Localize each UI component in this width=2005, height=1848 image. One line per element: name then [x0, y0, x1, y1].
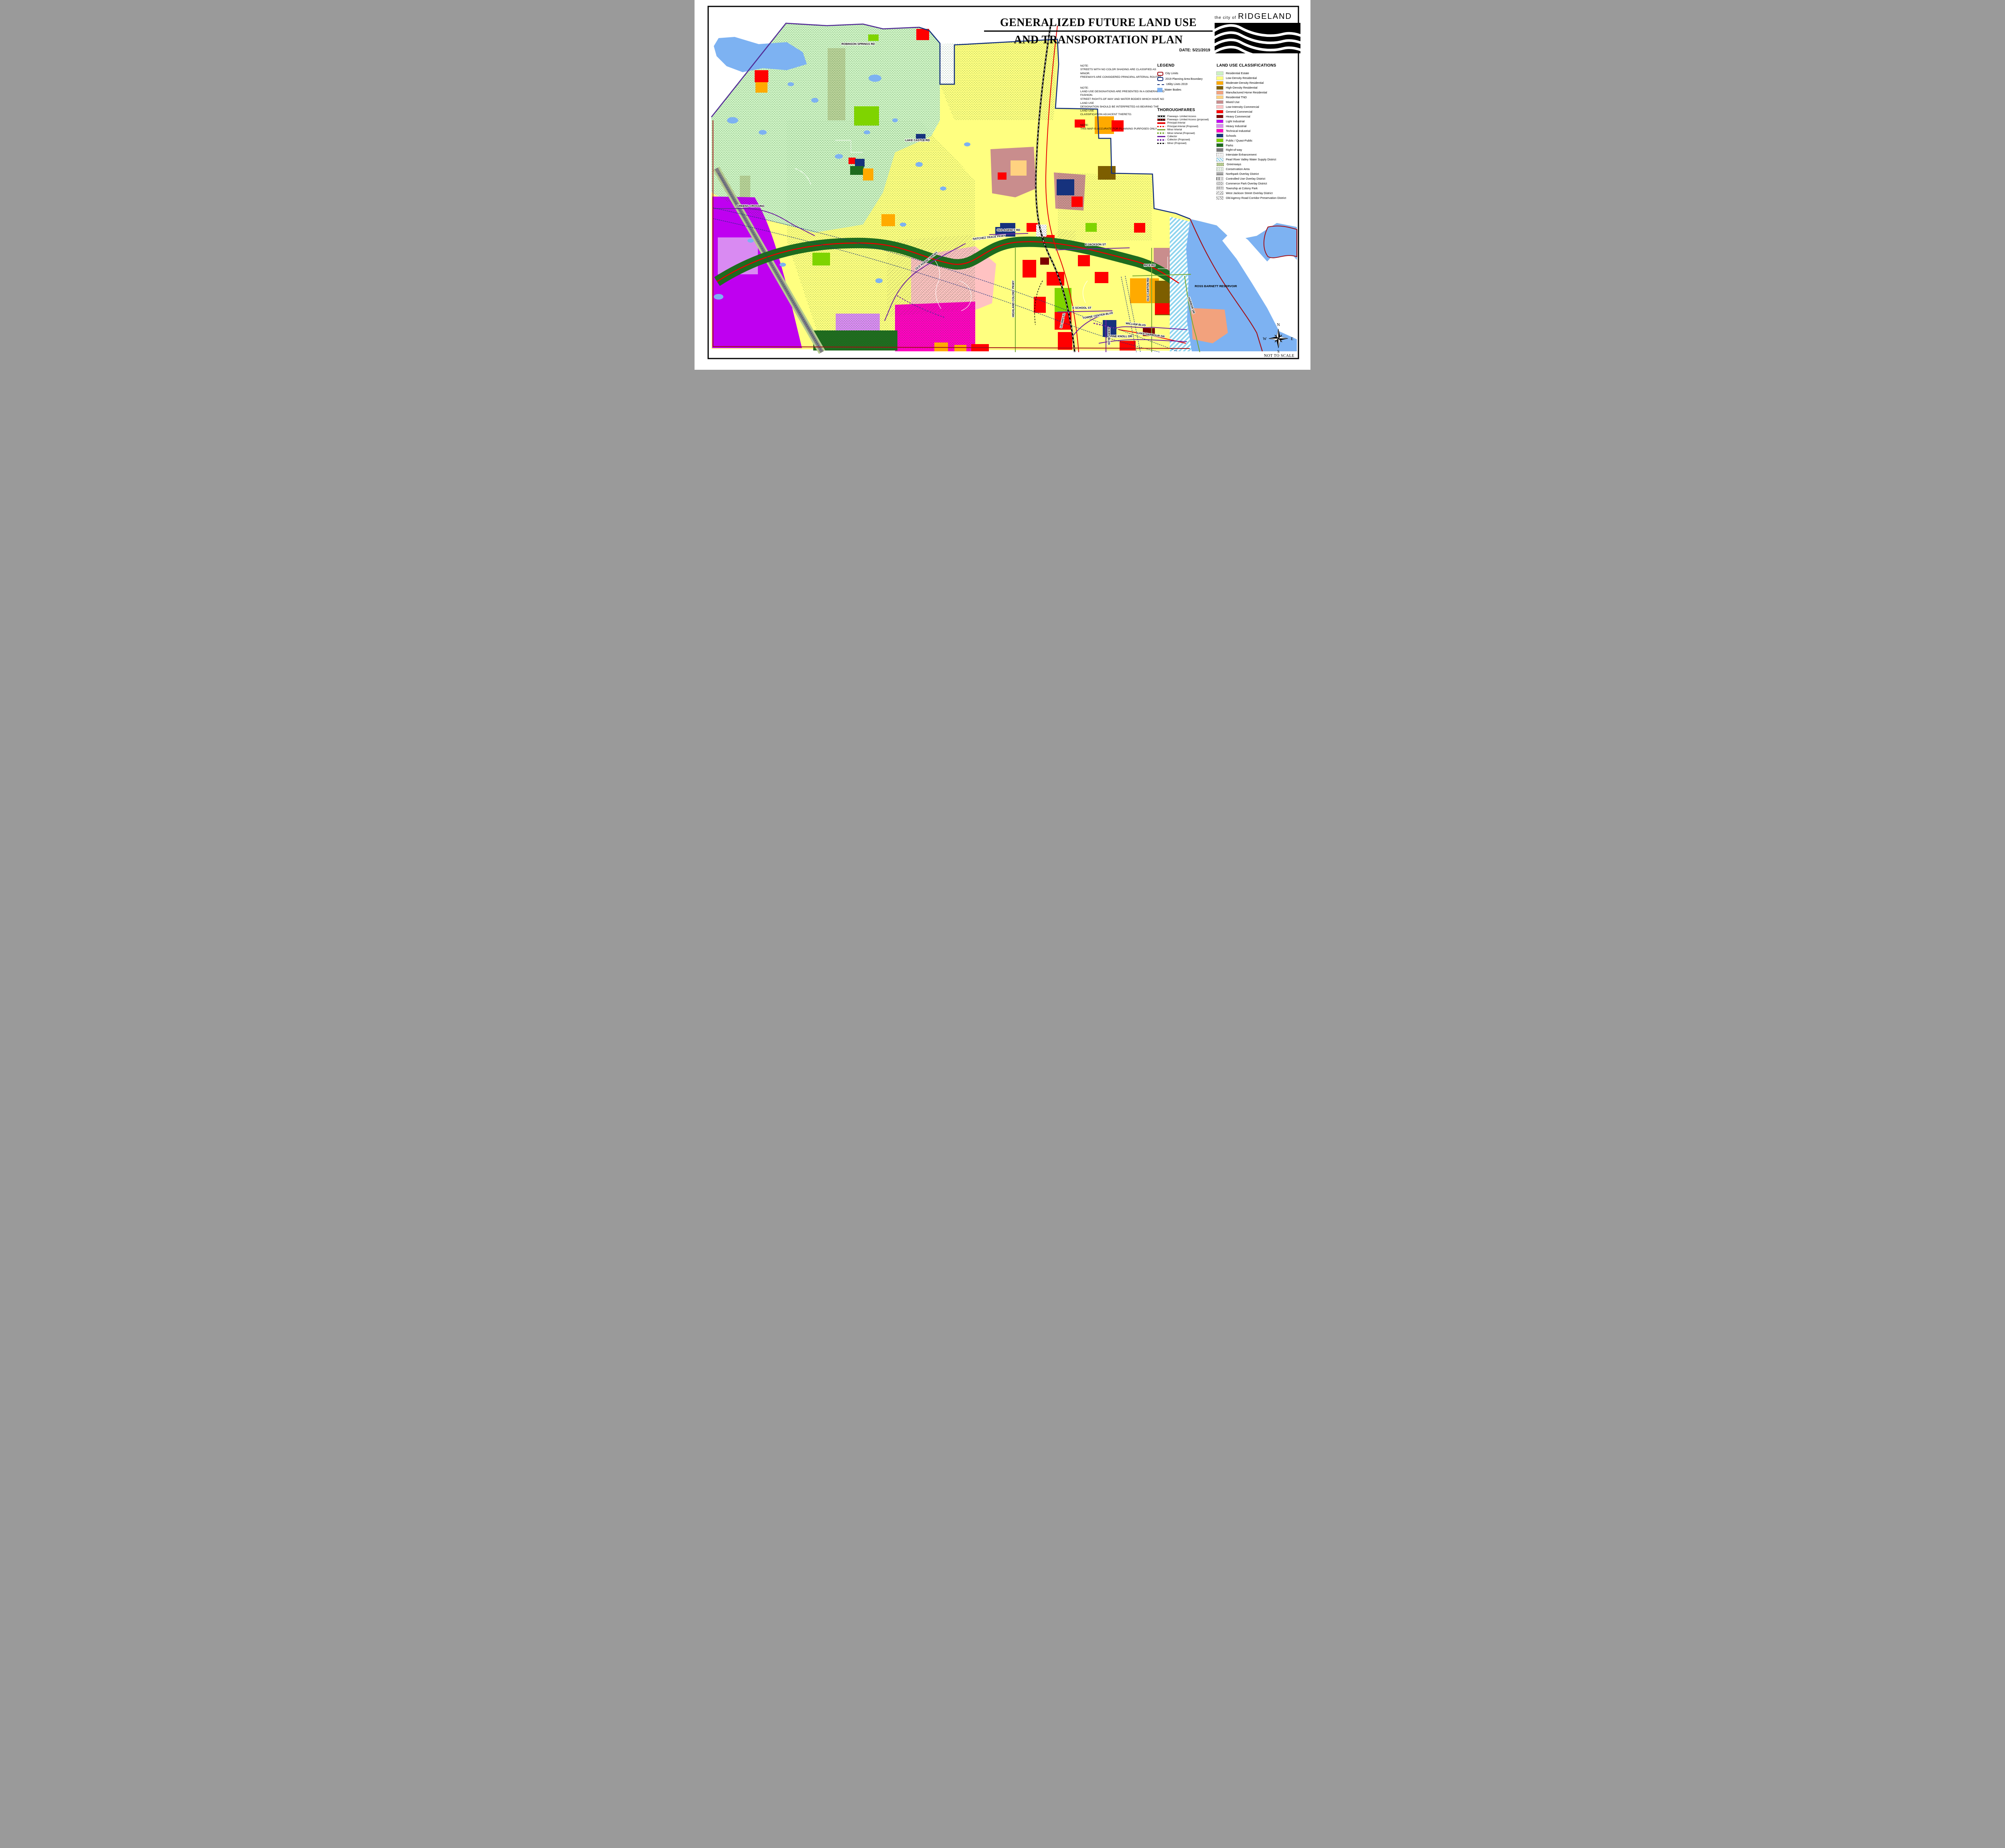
page-title-line1: GENERALIZED FUTURE LAND USE [984, 16, 1213, 29]
compass-w: W [1263, 337, 1267, 341]
land-use-item: Low-Density Residential [1217, 76, 1305, 81]
legend-item-label: Water Bodies [1165, 89, 1181, 91]
thoroughfare-item: Minor Arterial [1157, 128, 1217, 132]
map-label: RICE RD [1144, 264, 1156, 267]
land-use-item: Residential TND [1217, 95, 1305, 100]
land-use-swatch [1217, 168, 1223, 171]
land-use-item: Commerce Park Overlay District [1217, 181, 1305, 186]
land-use-item: Moderate-Density Residential [1217, 81, 1305, 85]
map-label: OLD AGENCY RD [997, 229, 1020, 232]
title-block: GENERALIZED FUTURE LAND USE AND TRANSPOR… [984, 16, 1213, 53]
land-use-swatch [1217, 124, 1223, 128]
land-use-label: General Commercial [1226, 110, 1252, 113]
land-use-label: Schools [1226, 134, 1236, 138]
thoroughfare-label: Minor Arterial [1167, 128, 1182, 131]
city-logo-text: the city of RIDGELAND [1215, 12, 1303, 21]
land-use-swatch [1217, 182, 1223, 185]
land-use-item: Residential Estate [1217, 71, 1305, 76]
city-logo: the city of RIDGELAND [1215, 12, 1303, 55]
land-use-label: Interstate Enhancement [1226, 153, 1256, 156]
legend-item: City Limits [1157, 71, 1209, 77]
land-use-label: High-Density Residential [1226, 86, 1258, 89]
thoroughfares-legend: THOROUGHFARES Freeways- Limited Access F… [1157, 108, 1217, 145]
note-heading: NOTE: [1080, 124, 1167, 127]
thoroughfare-line-symbol [1157, 122, 1165, 124]
note-text: THIS MAP IS ACCURATE FOR PLANNING PURPOS… [1080, 127, 1167, 131]
land-use-swatch [1217, 115, 1223, 118]
land-use-swatch [1217, 101, 1223, 104]
thoroughfare-label: Minor Arterial (Proposed) [1167, 132, 1195, 135]
land-use-swatch [1217, 77, 1223, 80]
thoroughfare-line-symbol [1157, 129, 1165, 130]
legend-item: 2019 Planning Area Boundary [1157, 77, 1209, 82]
land-use-item: General Commercial [1217, 109, 1305, 114]
thoroughfare-line-symbol [1157, 119, 1165, 120]
logo-city-name: RIDGELAND [1238, 12, 1292, 21]
thoroughfare-label: Principal Arterial [1167, 122, 1185, 124]
land-use-swatch [1217, 91, 1223, 94]
thoroughfare-line-symbol [1157, 143, 1165, 144]
land-use-item: Conservation Area [1217, 167, 1305, 172]
note-text: STREETS WITH NO COLOR SHADING ARE CLASSI… [1080, 68, 1167, 79]
map-label: HIGHLAND COLONY PKWY [1012, 280, 1015, 317]
thoroughfare-item: Collector [1157, 135, 1217, 138]
land-use-item: West Jackson Street Overlay District [1217, 190, 1305, 195]
land-use-label: Public / Quasi-Public [1226, 139, 1252, 142]
land-use-label: Pearl River Valley Water Supply District [1226, 158, 1276, 161]
land-use-swatch [1217, 96, 1223, 99]
land-use-legend: LAND USE CLASSIFICATIONS Residential Est… [1217, 63, 1305, 200]
legend: LEGEND City Limits 2019 Planning Area Bo… [1157, 63, 1209, 93]
land-use-swatch [1217, 144, 1223, 147]
land-use-label: Heavy Industrial [1226, 124, 1247, 128]
map-date: DATE: 5/21/2019 [984, 48, 1213, 53]
note: NOTE: LAND USE DESIGNATIONS ARE PRESENTE… [1080, 86, 1167, 117]
land-use-swatch [1217, 139, 1223, 142]
land-use-item: Northpark Overlay District [1217, 172, 1305, 176]
thoroughfare-label: Freeways- Limited Access [1167, 115, 1196, 118]
conservation-overlay [787, 120, 975, 349]
land-use-label: Old Agency Road Corridor Preservation Di… [1226, 196, 1286, 200]
map-label: E SCHOOL ST [1072, 307, 1092, 310]
land-use-item: High-Density Residential [1217, 85, 1305, 90]
land-use-item: Right-of-way [1217, 148, 1305, 152]
land-use-swatch [1217, 192, 1223, 195]
land-use-label: Low-Density Residential [1226, 76, 1257, 80]
map-label: OLD CANTON RD [1147, 278, 1150, 302]
land-use-label: Light Industrial [1226, 120, 1245, 123]
land-use-label: Controlled Use Overlay District [1226, 177, 1265, 180]
map-label: PINE KNOLL DR [1110, 335, 1132, 338]
legend-item-label: 2019 Planning Area Boundary [1165, 78, 1203, 81]
thoroughfare-line-symbol [1157, 132, 1165, 134]
land-use-swatch [1217, 187, 1223, 190]
land-use-label: Technical Industrial [1226, 129, 1250, 133]
land-use-swatch [1217, 129, 1223, 132]
note-heading: NOTE: [1080, 64, 1167, 68]
thoroughfare-label: Minor (Proposed) [1167, 142, 1187, 145]
land-use-item: Parks [1217, 143, 1305, 148]
thoroughfare-line-symbol [1157, 126, 1165, 127]
land-use-item: Light Industrial [1217, 119, 1305, 124]
thoroughfare-label: Collector [1167, 135, 1177, 138]
land-use-item: Old Agency Road Corridor Preservation Di… [1217, 195, 1305, 200]
land-use-item: Controlled Use Overlay District [1217, 176, 1305, 181]
land-use-label: Residential Estate [1226, 71, 1249, 75]
thoroughfare-item: Freeways- Limited Access (proposed) [1157, 118, 1217, 121]
land-use-heading: LAND USE CLASSIFICATIONS [1217, 63, 1305, 68]
note: NOTE: STREETS WITH NO COLOR SHADING ARE … [1080, 64, 1167, 79]
thoroughfare-item: Minor Arterial (Proposed) [1157, 132, 1217, 135]
land-use-swatch [1217, 86, 1223, 89]
logo-prefix: the city of [1215, 16, 1236, 20]
map-label: E JACKSON ST [1085, 243, 1106, 246]
thoroughfare-line-symbol [1157, 139, 1165, 140]
land-use-swatch [1217, 197, 1223, 200]
land-use-item: Manufactured Home Residential [1217, 90, 1305, 95]
land-use-swatch [1217, 105, 1223, 109]
compass-e: E [1291, 337, 1293, 341]
thoroughfare-label: Principal Arterial (Proposed) [1167, 125, 1198, 128]
land-use-swatch [1217, 172, 1223, 176]
thoroughfare-item: Principal Arterial [1157, 122, 1217, 125]
land-use-swatch [1217, 81, 1223, 85]
page-title-line2: AND TRANSPORTATION PLAN [984, 33, 1213, 47]
land-use-label: Greenways [1227, 162, 1241, 166]
map-label: GREENS CROSSING [737, 205, 765, 208]
land-use-item: Public / Quasi-Public [1217, 138, 1305, 143]
land-use-swatch [1217, 163, 1224, 166]
map-label: LAKE CASTLE RD [905, 139, 930, 142]
land-use-swatch [1217, 153, 1223, 156]
notes-block: NOTE: STREETS WITH NO COLOR SHADING ARE … [1080, 64, 1167, 138]
land-use-swatch [1217, 158, 1223, 161]
legend-item: Utility Lines 2019 [1157, 82, 1209, 87]
legend-item-label: City Limits [1165, 72, 1178, 75]
thoroughfare-item: Collector (Proposed) [1157, 138, 1217, 142]
thoroughfares-heading: THOROUGHFARES [1157, 108, 1217, 112]
land-use-label: Manufactured Home Residential [1226, 91, 1267, 94]
land-use-item: Interstate Enhancement [1217, 152, 1305, 157]
land-use-item: Heavy Commercial [1217, 114, 1305, 119]
land-use-label: Conservation Area [1226, 167, 1250, 171]
land-use-swatch [1217, 148, 1223, 152]
land-use-label: Low-Intensity Commercial [1226, 105, 1259, 109]
thoroughfare-item: Freeways- Limited Access [1157, 115, 1217, 118]
compass-n: N [1277, 323, 1280, 327]
land-use-label: Township at Colony Park [1226, 186, 1258, 190]
land-use-item: Low-Intensity Commercial [1217, 105, 1305, 109]
thoroughfare-label: Collector (Proposed) [1167, 138, 1190, 141]
land-use-label: Moderate-Density Residential [1226, 81, 1264, 85]
land-use-label: Heavy Commercial [1226, 115, 1250, 118]
land-use-label: West Jackson Street Overlay District [1226, 191, 1273, 195]
land-use-swatch [1217, 110, 1223, 113]
land-use-item: Technical Industrial [1217, 128, 1305, 133]
land-use-item: Mixed Use [1217, 100, 1305, 105]
map-label: ROBINSON SPRINGS RD [841, 43, 875, 46]
legend-symbol [1157, 88, 1162, 92]
title-rule [984, 30, 1213, 32]
legend-symbol [1157, 72, 1163, 76]
note: NOTE: THIS MAP IS ACCURATE FOR PLANNING … [1080, 124, 1167, 131]
thoroughfare-line-symbol [1157, 136, 1165, 137]
map-sheet: N E S W NOT TO SCALE ROBINSON SPRINGS RD… [695, 0, 1310, 370]
legend-item: Water Bodies [1157, 87, 1209, 93]
legend-item-label: Utility Lines 2019 [1166, 83, 1187, 86]
land-use-label: Parks [1226, 144, 1233, 147]
not-to-scale-caption: NOT TO SCALE [1264, 354, 1294, 358]
legend-heading: LEGEND [1157, 63, 1209, 68]
thoroughfare-item: Minor (Proposed) [1157, 142, 1217, 145]
land-use-swatch [1217, 177, 1223, 180]
logo-waves-graphic [1215, 23, 1300, 53]
map-label: ROSS BARNETT RESERVOIR [1195, 284, 1237, 288]
land-use-label: Northpark Overlay District [1226, 172, 1259, 176]
land-use-swatch [1217, 134, 1223, 137]
map-label: AVERY BLVD [1107, 327, 1110, 345]
land-use-item: Heavy Industrial [1217, 124, 1305, 128]
legend-symbol [1157, 84, 1164, 85]
note-heading: NOTE: [1080, 86, 1167, 90]
land-use-item: Township at Colony Park [1217, 186, 1305, 191]
land-use-label: Mixed Use [1226, 100, 1239, 104]
land-use-label: Commerce Park Overlay District [1226, 182, 1267, 185]
land-use-item: Greenways [1217, 162, 1305, 167]
land-use-item: Pearl River Valley Water Supply District [1217, 157, 1305, 162]
thoroughfare-item: Principal Arterial (Proposed) [1157, 125, 1217, 128]
land-use-item: Schools [1217, 133, 1305, 138]
land-use-swatch [1217, 72, 1223, 75]
land-use-label: Residential TND [1226, 95, 1247, 99]
thoroughfare-line-symbol [1157, 116, 1165, 117]
land-use-swatch [1217, 120, 1223, 123]
thoroughfare-label: Freeways- Limited Access (proposed) [1167, 118, 1209, 121]
note-text: LAND USE DESIGNATIONS ARE PRESENTED IN A… [1080, 90, 1167, 117]
legend-symbol [1157, 77, 1163, 81]
land-use-label: Right-of-way [1226, 148, 1242, 152]
